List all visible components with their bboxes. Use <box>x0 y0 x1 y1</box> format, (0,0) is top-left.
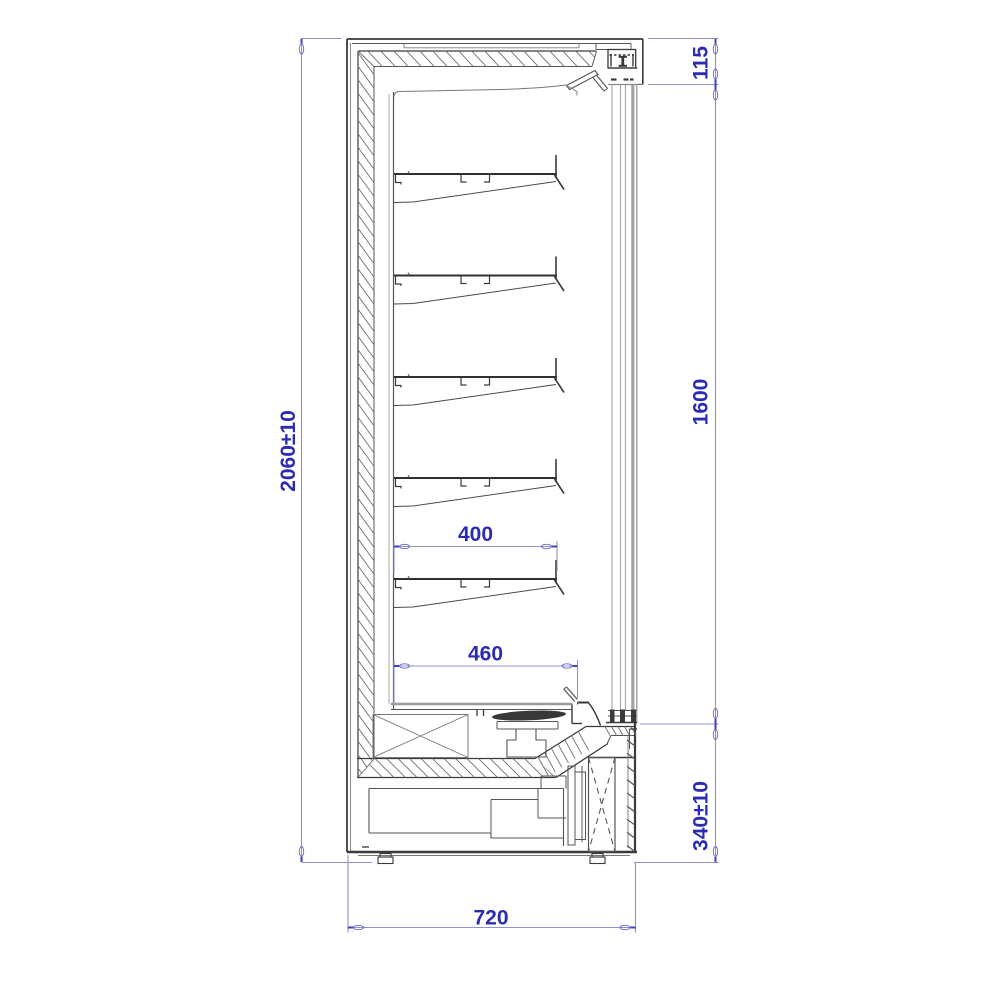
svg-text:1600: 1600 <box>690 379 713 426</box>
svg-text:460: 460 <box>468 643 503 666</box>
svg-text:115: 115 <box>690 46 713 80</box>
svg-text:400: 400 <box>458 523 493 546</box>
svg-text:720: 720 <box>473 907 508 930</box>
svg-text:340±10: 340±10 <box>690 781 713 851</box>
svg-text:2060±10: 2060±10 <box>277 410 300 492</box>
